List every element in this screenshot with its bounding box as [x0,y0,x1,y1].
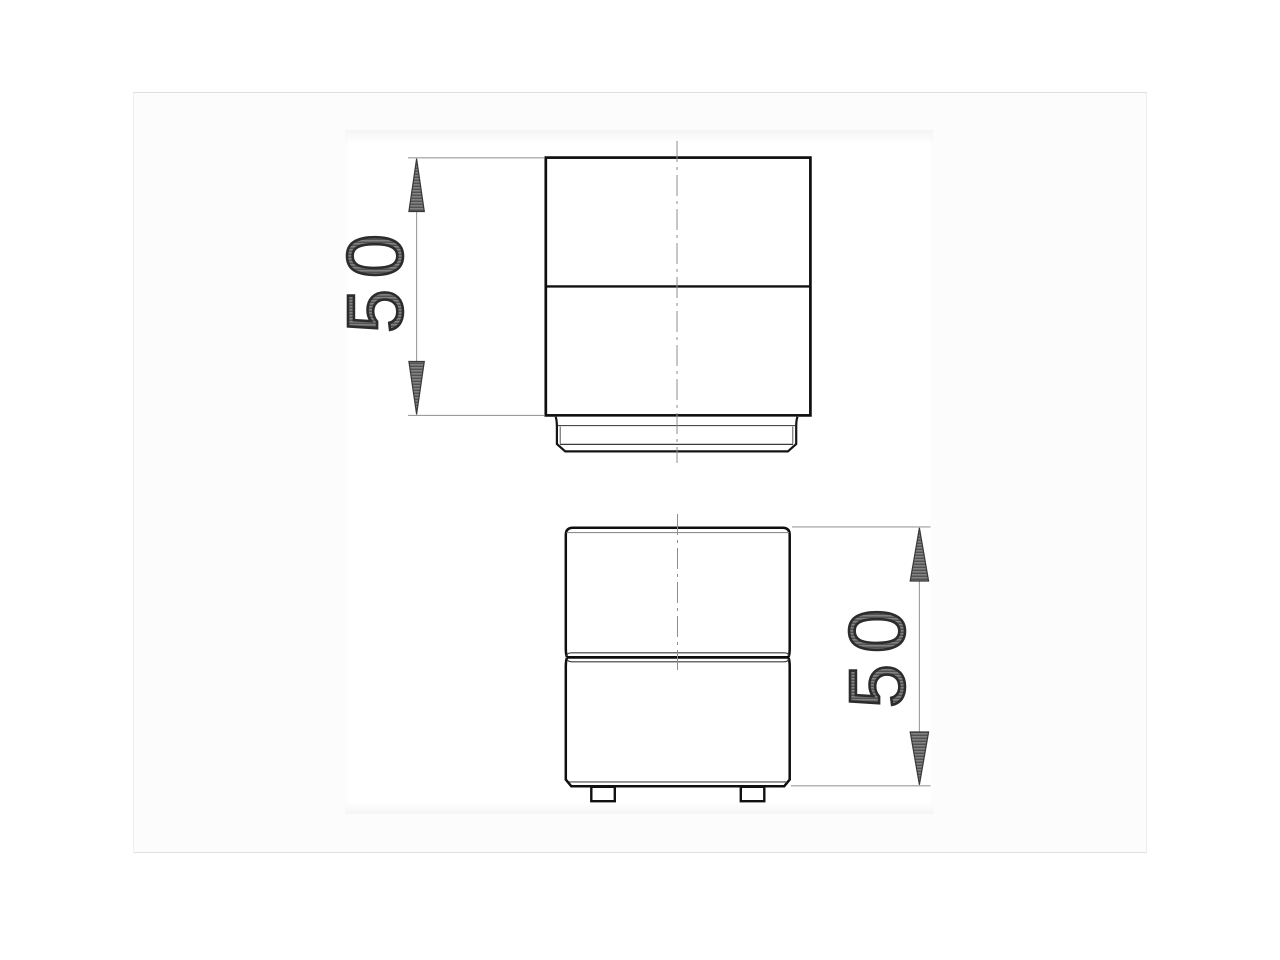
svg-text:50: 50 [330,223,419,333]
svg-text:50: 50 [832,598,921,708]
